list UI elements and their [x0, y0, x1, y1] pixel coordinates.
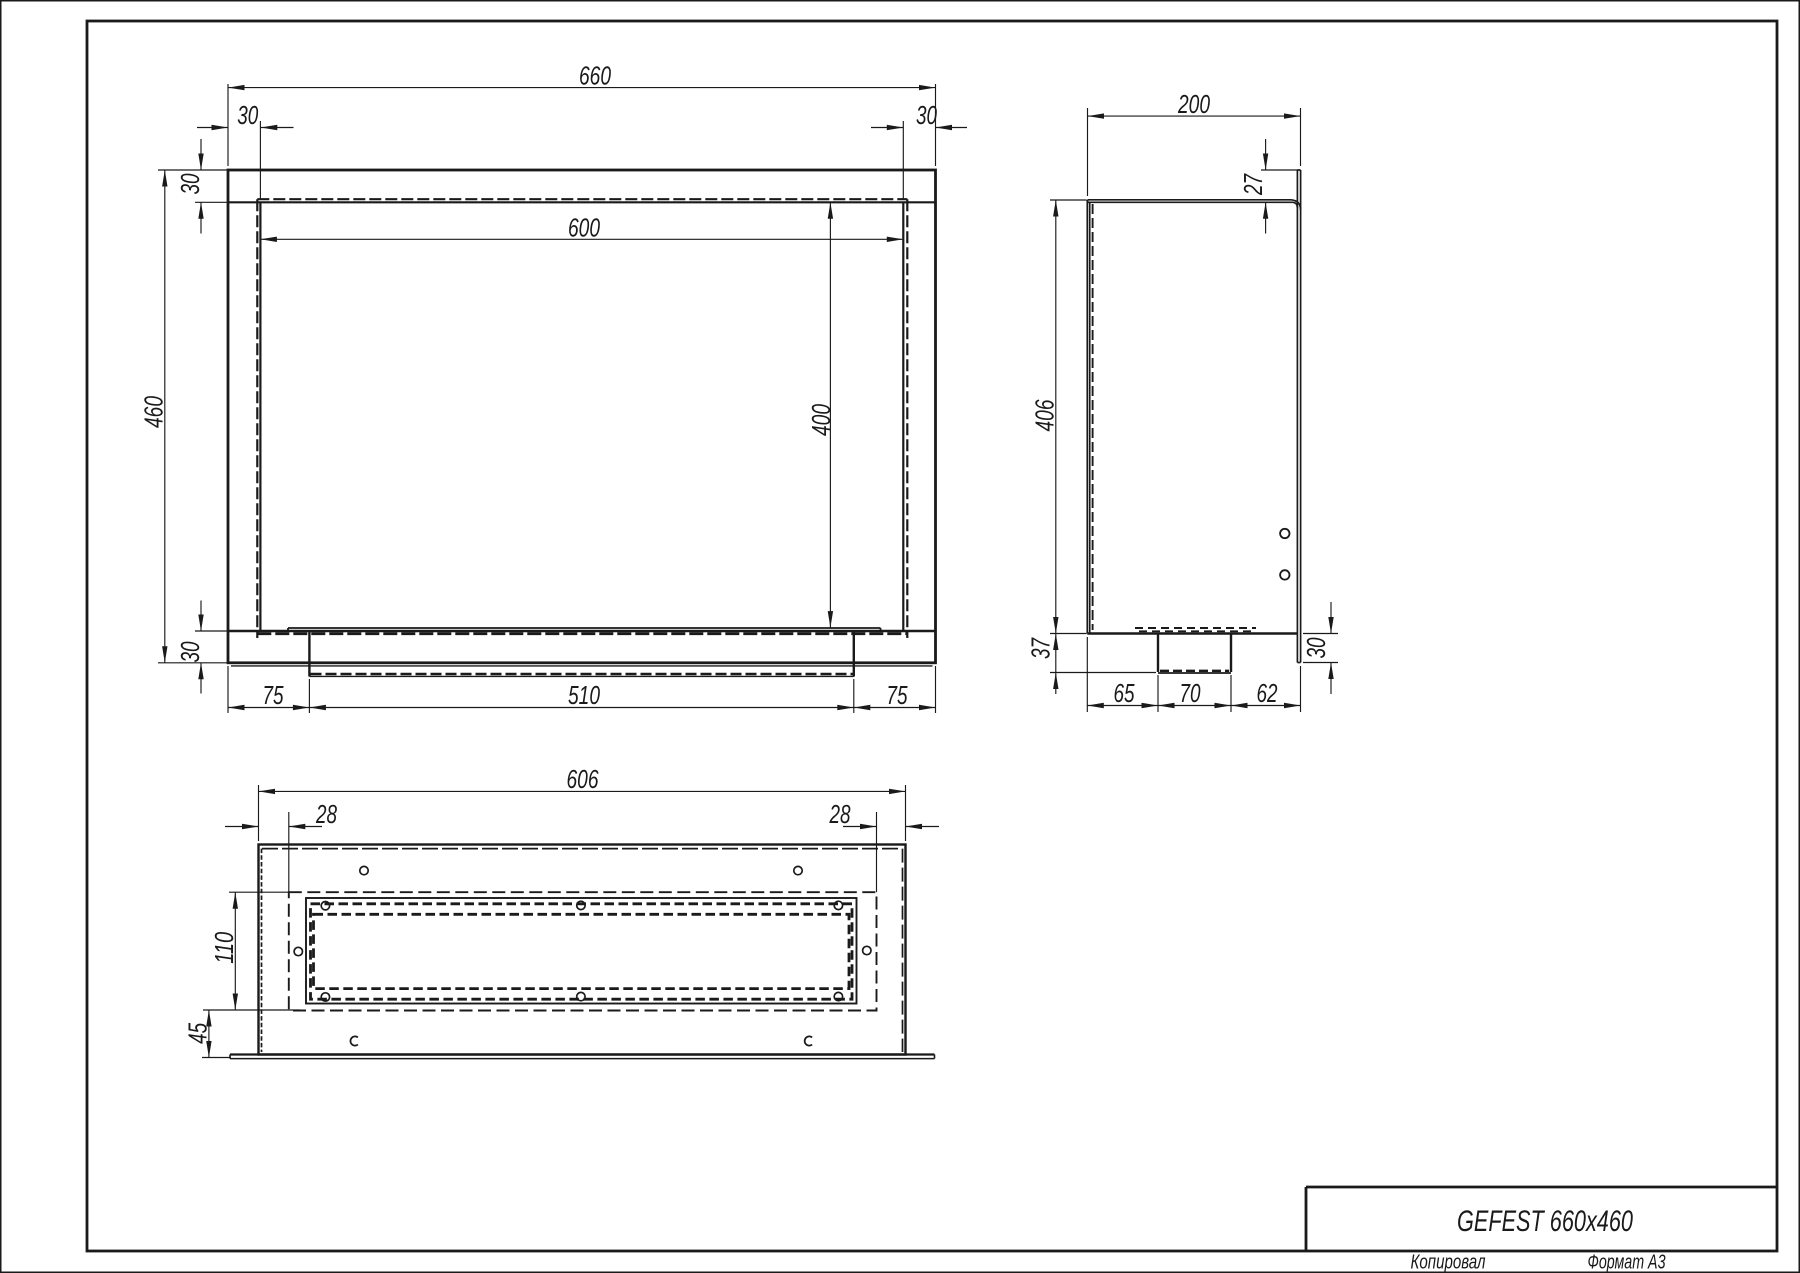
svg-text:28: 28	[829, 799, 851, 829]
svg-text:Копировал: Копировал	[1411, 1252, 1486, 1273]
svg-text:30: 30	[1301, 637, 1331, 658]
svg-text:660: 660	[579, 60, 611, 90]
svg-text:28: 28	[315, 799, 337, 829]
svg-text:200: 200	[1177, 89, 1210, 119]
svg-text:75: 75	[263, 680, 284, 710]
svg-text:27: 27	[1238, 173, 1268, 196]
svg-text:510: 510	[568, 680, 600, 710]
svg-text:30: 30	[916, 100, 937, 130]
svg-text:406: 406	[1029, 399, 1059, 431]
svg-text:37: 37	[1025, 637, 1055, 659]
svg-text:400: 400	[806, 404, 836, 436]
svg-text:45: 45	[183, 1023, 213, 1044]
svg-text:30: 30	[175, 173, 205, 194]
svg-text:30: 30	[175, 641, 205, 662]
svg-text:600: 600	[568, 212, 600, 242]
svg-text:62: 62	[1257, 678, 1278, 708]
svg-text:110: 110	[209, 931, 239, 963]
svg-text:30: 30	[237, 100, 258, 130]
svg-text:75: 75	[887, 680, 908, 710]
svg-text:GEFEST 660x460: GEFEST 660x460	[1457, 1205, 1633, 1238]
svg-text:Формат А3: Формат А3	[1588, 1252, 1666, 1273]
svg-text:606: 606	[567, 764, 599, 794]
svg-text:70: 70	[1180, 678, 1201, 708]
svg-text:65: 65	[1114, 678, 1135, 708]
svg-text:460: 460	[138, 396, 168, 428]
